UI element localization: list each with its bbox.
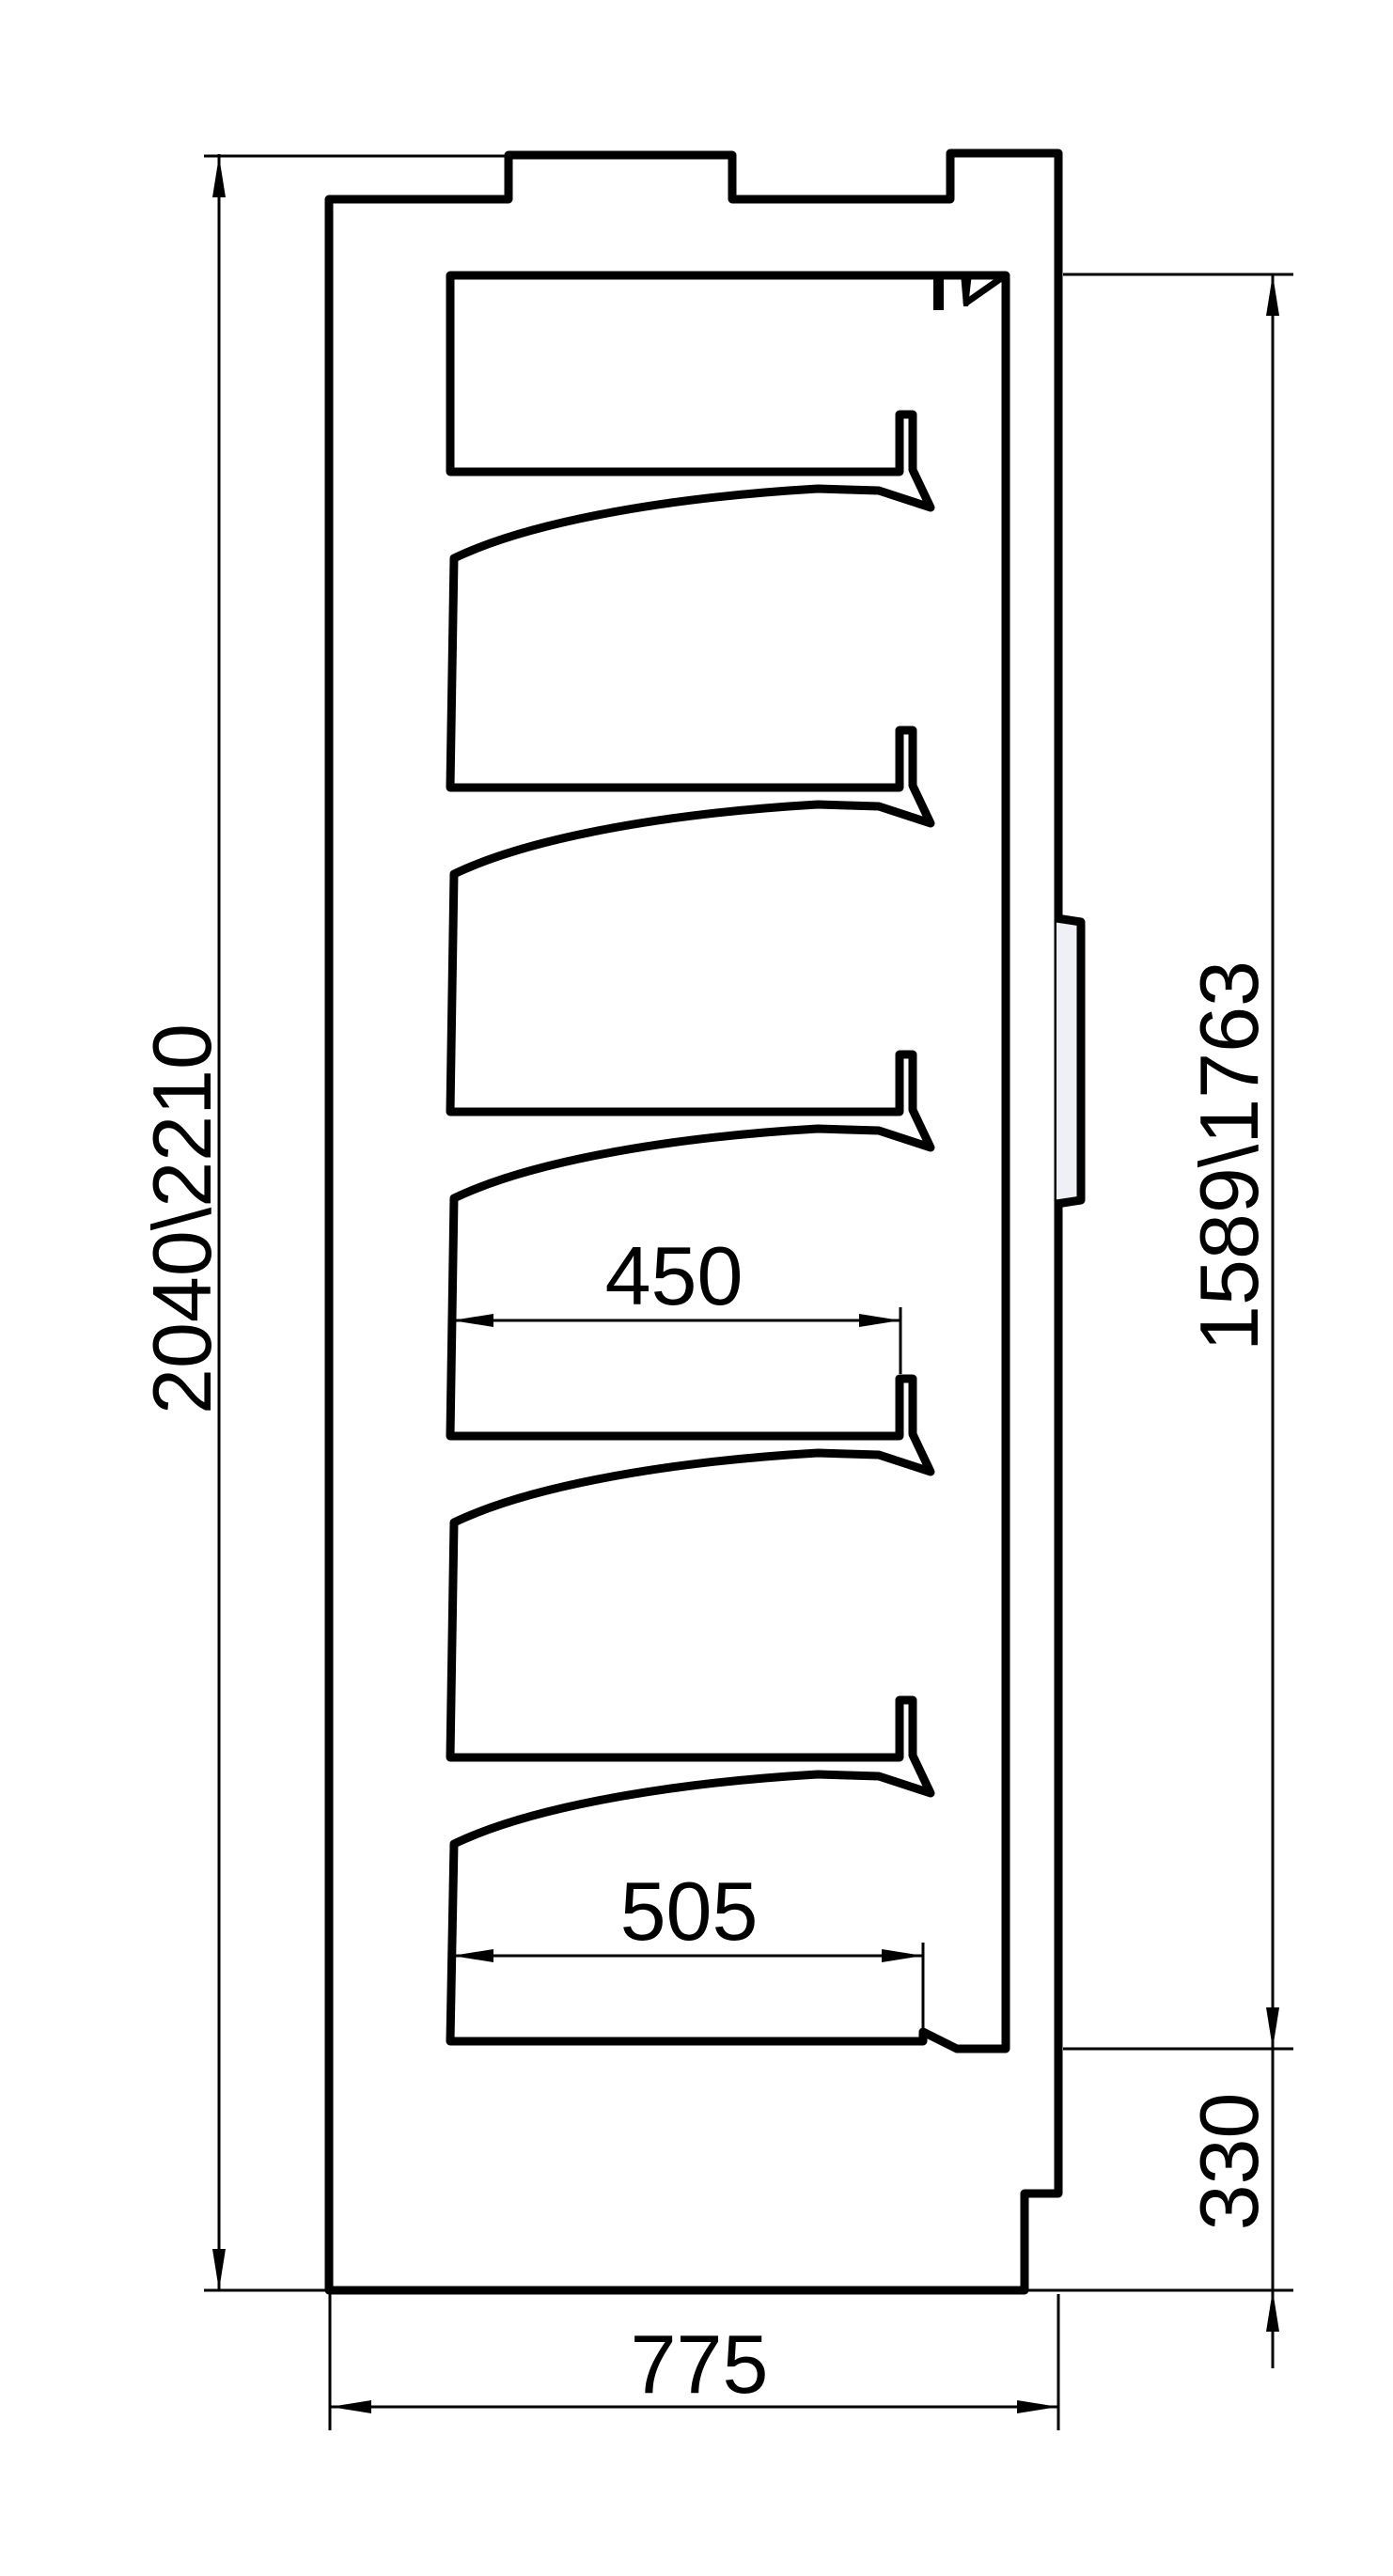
hook-diagonal xyxy=(966,276,1004,303)
overall-depth-label: 775 xyxy=(631,2318,769,2411)
arrow-interior-height-bottom xyxy=(1266,2007,1279,2049)
hook-bar xyxy=(933,273,944,310)
arrow-upper-shelf-right xyxy=(859,1314,900,1327)
arrow-bottom-shelf-right xyxy=(882,1949,923,1962)
arrow-base-height-bottom xyxy=(1266,2290,1279,2332)
dimension-labels: 2040\2210 1589\1763 330 450 505 775 xyxy=(135,960,1276,2411)
arrow-overall-height-bottom xyxy=(212,2249,226,2290)
arrow-overall-height-top xyxy=(212,156,226,197)
upper-shelf-depth-label: 450 xyxy=(605,1229,743,1322)
back-panel-bump xyxy=(1056,918,1081,1204)
shelf-unit-cross-section: 2040\2210 1589\1763 330 450 505 775 xyxy=(0,0,1393,2576)
interior-height-label: 1589\1763 xyxy=(1182,960,1276,1351)
arrow-upper-shelf-left xyxy=(452,1314,493,1327)
overall-height-label: 2040\2210 xyxy=(135,1023,228,1414)
base-height-label: 330 xyxy=(1182,2093,1276,2231)
arrow-interior-height-top xyxy=(1266,274,1279,316)
technical-drawing-page: 2040\2210 1589\1763 330 450 505 775 xyxy=(0,0,1393,2576)
arrow-bottom-shelf-left xyxy=(452,1949,493,1962)
arrow-overall-depth-left xyxy=(330,2400,371,2413)
arrow-overall-depth-right xyxy=(1017,2400,1058,2413)
interior-cavity-and-shelves xyxy=(450,275,1006,2049)
bottom-shelf-depth-label: 505 xyxy=(620,1865,759,1958)
